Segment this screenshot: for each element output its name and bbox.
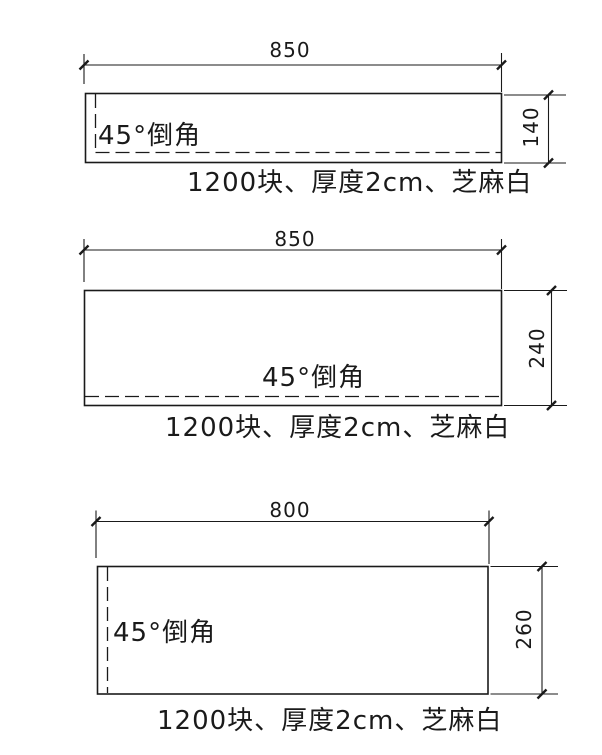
chamfer-label: 45°倒角: [262, 365, 365, 391]
panel-3-linework: [92, 511, 559, 699]
height-dimension-label: 240: [527, 327, 547, 368]
height-dimension-label: 140: [521, 106, 541, 147]
stone-panel-drawing: 850 140 45°倒角 1200块、厚度2cm、芝麻白 850 240 45…: [0, 0, 602, 755]
panel-caption: 1200块、厚度2cm、芝麻白: [165, 415, 510, 441]
width-dimension-label: 800: [269, 500, 310, 520]
chamfer-label: 45°倒角: [98, 123, 201, 149]
width-dimension-label: 850: [274, 229, 315, 249]
chamfer-label: 45°倒角: [113, 620, 216, 646]
panel-caption: 1200块、厚度2cm、芝麻白: [187, 170, 532, 196]
width-dimension-label: 850: [269, 40, 310, 60]
height-dimension-label: 260: [514, 608, 534, 649]
panel-caption: 1200块、厚度2cm、芝麻白: [157, 708, 502, 734]
